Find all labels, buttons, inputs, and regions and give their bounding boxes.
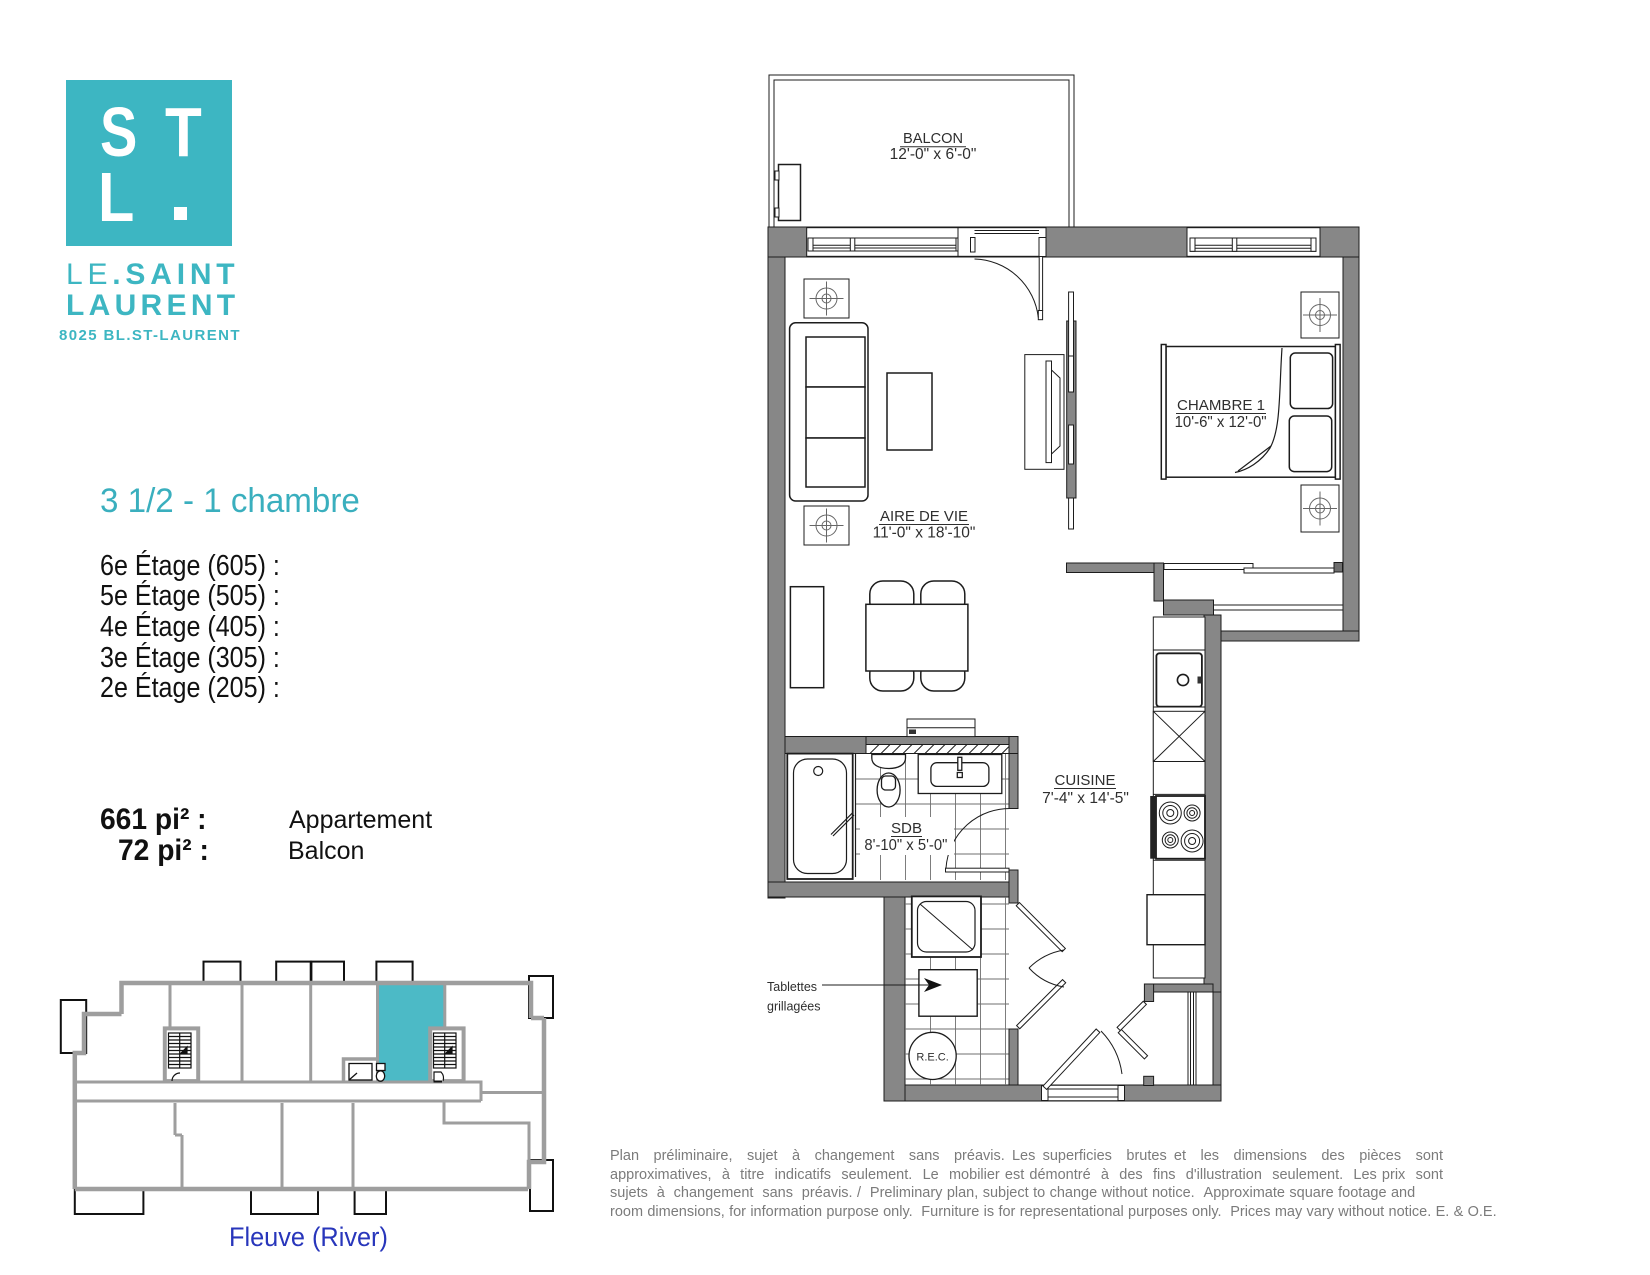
svg-text:grillagées: grillagées — [767, 1000, 821, 1014]
svg-text:CHAMBRE 1: CHAMBRE 1 — [1177, 397, 1265, 414]
svg-text:7'-4" x 14'-5": 7'-4" x 14'-5" — [1042, 790, 1129, 807]
svg-text:BALCON: BALCON — [903, 130, 963, 147]
svg-text:8'-10" x 5'-0": 8'-10" x 5'-0" — [864, 837, 947, 854]
svg-text:R.E.C.: R.E.C. — [916, 1052, 948, 1064]
svg-text:AIRE DE VIE: AIRE DE VIE — [880, 508, 968, 525]
svg-text:CUISINE: CUISINE — [1055, 772, 1116, 789]
svg-text:11'-0" x 18'-10": 11'-0" x 18'-10" — [873, 525, 976, 542]
svg-text:12'-0" x 6'-0": 12'-0" x 6'-0" — [890, 146, 977, 163]
svg-text:SDB: SDB — [891, 820, 922, 837]
svg-text:10'-6" x 12'-0": 10'-6" x 12'-0" — [1175, 414, 1267, 431]
svg-text:Tablettes: Tablettes — [767, 980, 817, 994]
